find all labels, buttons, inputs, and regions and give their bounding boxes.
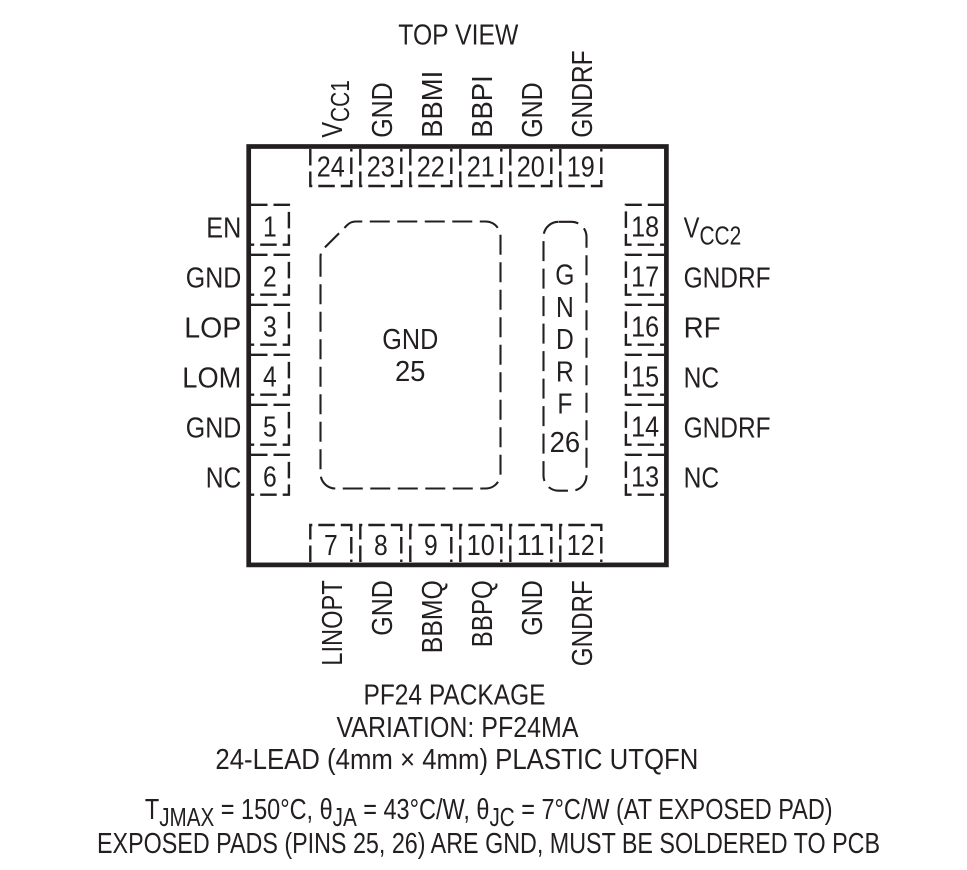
svg-text:EXPOSED PADS (PINS 25, 26) ARE: EXPOSED PADS (PINS 25, 26) ARE GND, MUST… <box>97 828 880 860</box>
svg-text:22: 22 <box>417 151 445 183</box>
svg-text:15: 15 <box>631 362 659 394</box>
svg-text:24: 24 <box>317 151 345 183</box>
svg-text:9: 9 <box>424 529 438 561</box>
svg-text:NC: NC <box>684 463 720 495</box>
svg-text:GNDRF: GNDRF <box>567 580 599 666</box>
svg-text:VCC2: VCC2 <box>684 211 742 250</box>
svg-text:RF: RF <box>684 313 721 345</box>
svg-text:16: 16 <box>631 312 659 344</box>
svg-text:26: 26 <box>550 427 581 459</box>
svg-text:GND: GND <box>517 82 549 138</box>
svg-text:BBPI: BBPI <box>467 75 499 138</box>
svg-text:LOP: LOP <box>184 313 241 345</box>
svg-text:GNDRF: GNDRF <box>684 413 771 445</box>
svg-text:N: N <box>556 291 574 323</box>
svg-text:VARIATION: PF24MA: VARIATION: PF24MA <box>337 712 580 744</box>
svg-text:GND: GND <box>186 413 242 445</box>
svg-text:NC: NC <box>206 463 242 495</box>
svg-text:3: 3 <box>263 311 277 343</box>
svg-text:BBPQ: BBPQ <box>467 580 499 647</box>
svg-text:LOM: LOM <box>182 363 241 395</box>
svg-text:6: 6 <box>263 461 277 493</box>
svg-text:GND: GND <box>367 82 399 138</box>
svg-text:TOP VIEW: TOP VIEW <box>398 19 519 51</box>
svg-text:10: 10 <box>467 530 495 562</box>
svg-text:24-LEAD (4mm × 4mm) PLASTIC UT: 24-LEAD (4mm × 4mm) PLASTIC UTQFN <box>215 744 698 776</box>
svg-text:14: 14 <box>631 412 659 444</box>
svg-text:8: 8 <box>374 529 388 561</box>
svg-text:GND: GND <box>367 580 399 636</box>
svg-text:21: 21 <box>467 151 495 183</box>
svg-text:D: D <box>556 323 574 355</box>
svg-text:1: 1 <box>263 211 277 243</box>
svg-text:G: G <box>555 259 574 291</box>
svg-text:23: 23 <box>367 151 395 183</box>
svg-text:GND: GND <box>517 580 549 636</box>
svg-text:BBMQ: BBMQ <box>417 580 449 653</box>
svg-text:17: 17 <box>631 262 659 294</box>
svg-text:5: 5 <box>263 411 277 443</box>
svg-text:4: 4 <box>263 361 277 393</box>
svg-text:2: 2 <box>263 261 277 293</box>
svg-text:7: 7 <box>324 529 338 561</box>
svg-text:EN: EN <box>206 213 241 245</box>
svg-text:18: 18 <box>631 212 659 244</box>
svg-text:NC: NC <box>684 363 720 395</box>
svg-text:LINOPT: LINOPT <box>317 580 349 666</box>
svg-text:GNDRF: GNDRF <box>567 50 599 138</box>
svg-text:20: 20 <box>517 151 545 183</box>
svg-text:F: F <box>557 388 572 420</box>
svg-text:13: 13 <box>631 462 659 494</box>
svg-text:PF24 PACKAGE: PF24 PACKAGE <box>364 680 546 712</box>
svg-text:11: 11 <box>517 530 545 562</box>
svg-text:GNDRF: GNDRF <box>684 263 771 295</box>
svg-text:25: 25 <box>395 356 426 388</box>
svg-text:GND: GND <box>186 263 242 295</box>
svg-text:12: 12 <box>567 530 595 562</box>
svg-text:GND: GND <box>382 324 438 356</box>
svg-text:19: 19 <box>567 151 595 183</box>
svg-text:VCC1: VCC1 <box>316 80 355 138</box>
svg-text:TJMAX = 150°C, θJA = 43°C/W, θ: TJMAX = 150°C, θJA = 43°C/W, θJC = 7°C/W… <box>145 793 833 832</box>
svg-text:R: R <box>556 355 574 387</box>
svg-text:BBMI: BBMI <box>417 71 449 138</box>
